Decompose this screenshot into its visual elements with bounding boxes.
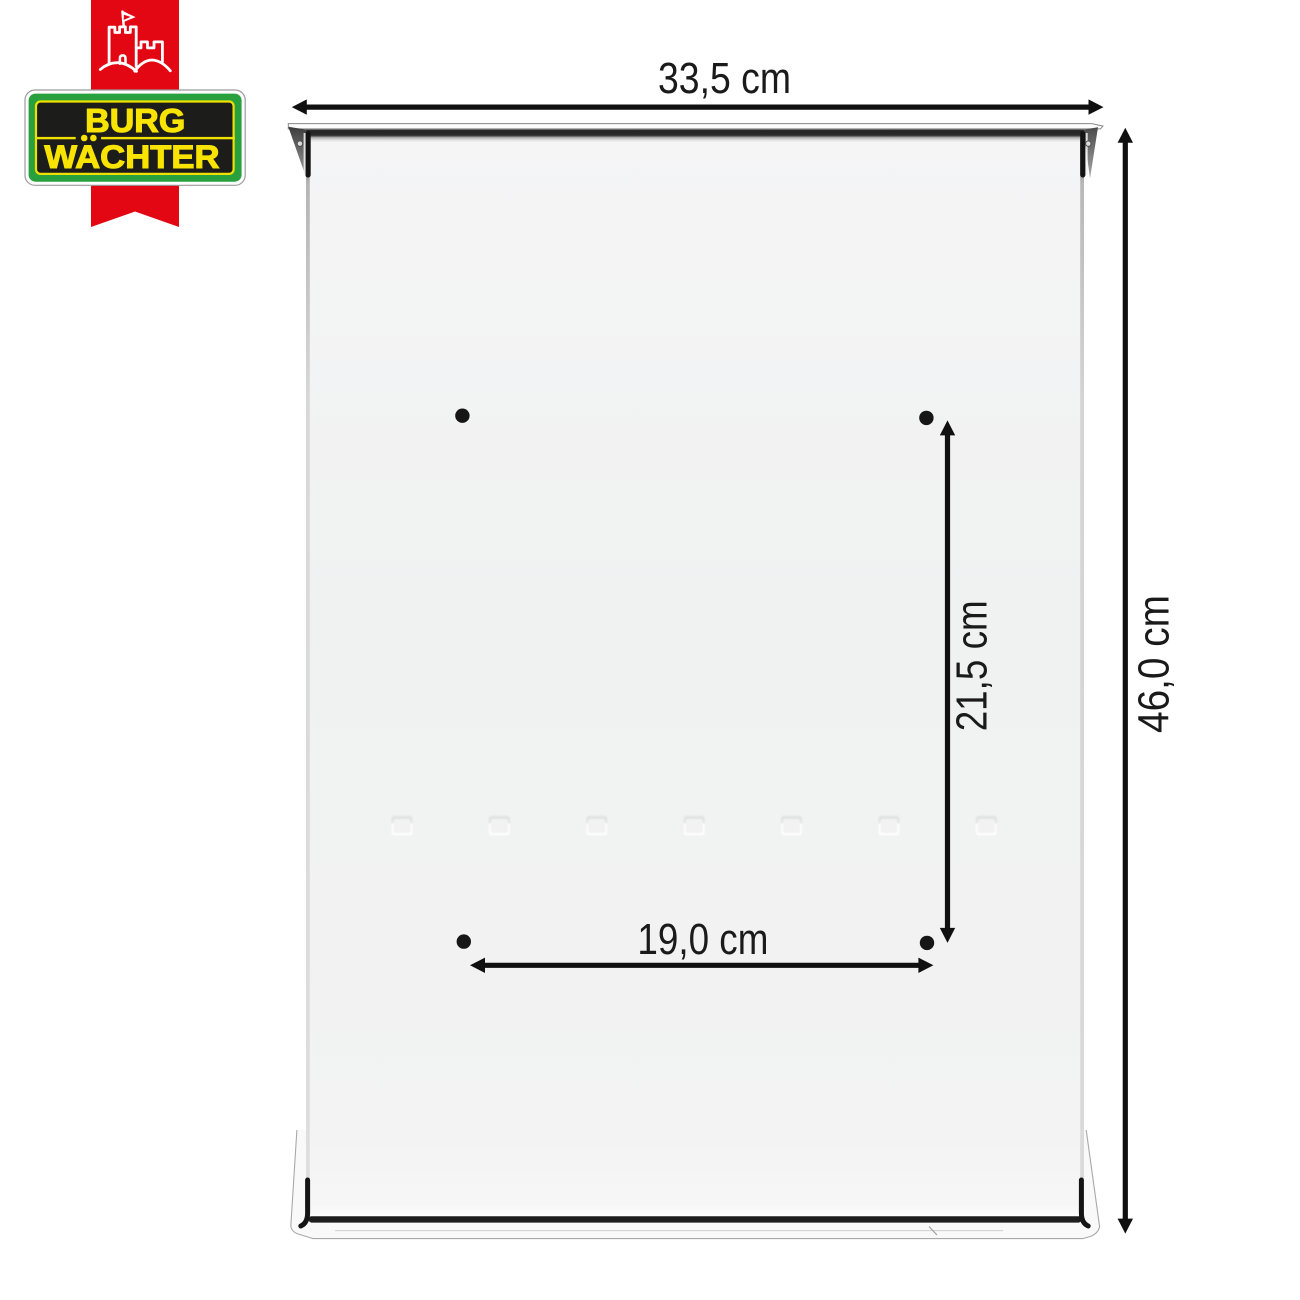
svg-text:46,0 cm: 46,0 cm: [1130, 595, 1179, 733]
svg-text:BURG: BURG: [85, 103, 185, 140]
svg-text:19,0 cm: 19,0 cm: [637, 915, 768, 964]
svg-text:WACHTER: WACHTER: [44, 139, 219, 175]
svg-text:21,5 cm: 21,5 cm: [948, 600, 997, 731]
svg-text:33,5 cm: 33,5 cm: [658, 54, 791, 103]
